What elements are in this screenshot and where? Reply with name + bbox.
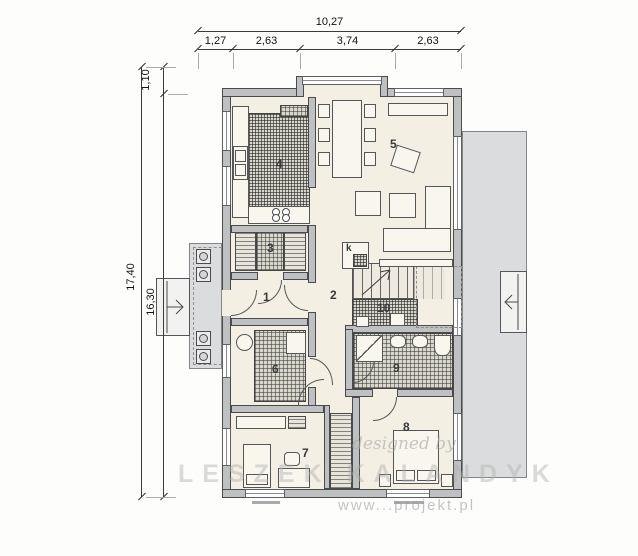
kitchen-window	[222, 166, 231, 206]
dining-table	[332, 100, 362, 178]
hall1-bath6-wall	[231, 318, 308, 326]
room7-shelf	[236, 416, 286, 429]
room-label-6: 6	[272, 362, 279, 376]
bath9-left-wall	[345, 329, 353, 393]
watermark-name: LESZEK KALANDYK	[178, 460, 559, 489]
room7-shelf-hatch	[288, 416, 306, 429]
porch-column	[196, 349, 211, 364]
room-label-9: 9	[393, 361, 400, 375]
sideboard	[388, 103, 448, 116]
bath6-window	[222, 344, 231, 378]
stairs-direction-arrow-icon	[358, 266, 398, 298]
kitchen-window	[222, 111, 231, 151]
dim-seg-2: 2,63	[233, 35, 300, 47]
wc10-toilet	[390, 313, 405, 326]
room-label-4: 4	[276, 157, 283, 171]
dim-ext	[233, 53, 234, 69]
entry-arrow-left-icon	[501, 272, 526, 332]
room-label-8: 8	[403, 420, 410, 434]
toilet	[434, 335, 451, 356]
room-label-2: 2	[330, 288, 337, 302]
coffee-table	[389, 193, 416, 218]
kitchen-appliance	[280, 105, 308, 117]
dining-chair	[364, 128, 376, 142]
kitchen-sink-basin	[235, 150, 246, 162]
shower	[356, 335, 383, 362]
dining-chair	[364, 104, 376, 118]
dim-line-total	[198, 31, 461, 32]
porch-roof-outline	[193, 247, 222, 365]
dim-seg-1: 1,27	[198, 35, 233, 47]
washbasin	[390, 335, 406, 348]
porch-column	[196, 249, 211, 264]
entry-arrow-right-icon	[157, 279, 189, 335]
dim-ext	[461, 53, 462, 69]
dim-ext	[168, 94, 188, 95]
bath6-room7-wall	[231, 405, 324, 413]
toilet	[286, 332, 306, 354]
wc10-washbasin	[356, 316, 369, 327]
dim-line-segments	[198, 49, 461, 50]
washbasin	[412, 335, 428, 348]
kitchen-pantry-wall	[231, 225, 308, 233]
dim-ext	[146, 497, 176, 498]
window-sill-mark	[252, 501, 280, 504]
dining-chair	[318, 104, 330, 118]
dim-left-upper: 1,10	[140, 60, 152, 100]
dim-left-main: 16,30	[145, 279, 157, 325]
armchair	[355, 191, 381, 216]
stairs-above-outline	[416, 266, 462, 328]
dining-chair	[364, 152, 376, 166]
room-label-5: 5	[390, 137, 397, 151]
dim-ext	[198, 53, 199, 69]
terrace-door	[453, 136, 462, 230]
bath9-bottom-wall	[345, 389, 373, 397]
dim-tick	[138, 493, 146, 501]
dim-ext	[146, 67, 176, 68]
pantry-hall1-wall	[231, 272, 258, 280]
dining-chair	[318, 152, 330, 166]
entry-steps	[156, 278, 190, 336]
room8-top-wall	[397, 389, 453, 397]
pantry-shelves-right	[284, 229, 306, 271]
dim-line-left-overall	[141, 67, 142, 497]
watermark-url: www...projekt.pl	[338, 497, 475, 514]
stove-burner	[282, 214, 290, 222]
room7-window-south	[245, 489, 285, 498]
pantry-hall1-wall	[283, 272, 308, 280]
tv-bench	[379, 259, 453, 267]
kitchen-sink-basin	[235, 164, 246, 176]
room-label-1: 1	[263, 290, 270, 304]
porch-column	[196, 267, 211, 282]
dim-ext	[300, 53, 301, 69]
dim-left-overall: 17,40	[125, 254, 137, 300]
corner-sofa-horizontal	[383, 228, 451, 252]
dim-seg-3: 3,74	[300, 35, 395, 47]
room-label-3: 3	[267, 241, 274, 255]
dim-ext	[395, 53, 396, 69]
watermark-script: designed by	[352, 434, 456, 454]
washbasin-round	[236, 334, 253, 351]
porch-column	[196, 331, 211, 346]
dim-tick	[160, 90, 168, 98]
pantry-hall-wall	[308, 225, 316, 283]
room-label-7: 7	[302, 446, 309, 460]
fireplace-label: k	[346, 243, 352, 254]
fireplace-flue	[353, 254, 367, 267]
dining-chair	[318, 128, 330, 142]
living-window	[394, 88, 444, 97]
stove-burner	[272, 214, 280, 222]
dim-total-top: 10,27	[198, 16, 461, 28]
dim-seg-4: 2,63	[395, 35, 461, 47]
bay-window	[302, 76, 382, 85]
hall-wall	[308, 312, 316, 357]
kitchen-hall-wall	[308, 97, 316, 188]
wall-top-left	[222, 88, 302, 97]
room-label-10: 10	[377, 301, 390, 315]
floor-plan-sheet: k 1 2 3 4 5 6 7 8 9	[0, 0, 638, 556]
pantry-shelves-left	[235, 229, 256, 271]
terrace-steps	[500, 271, 527, 333]
entry-opening	[222, 290, 231, 316]
dim-line-left-main	[163, 67, 164, 497]
